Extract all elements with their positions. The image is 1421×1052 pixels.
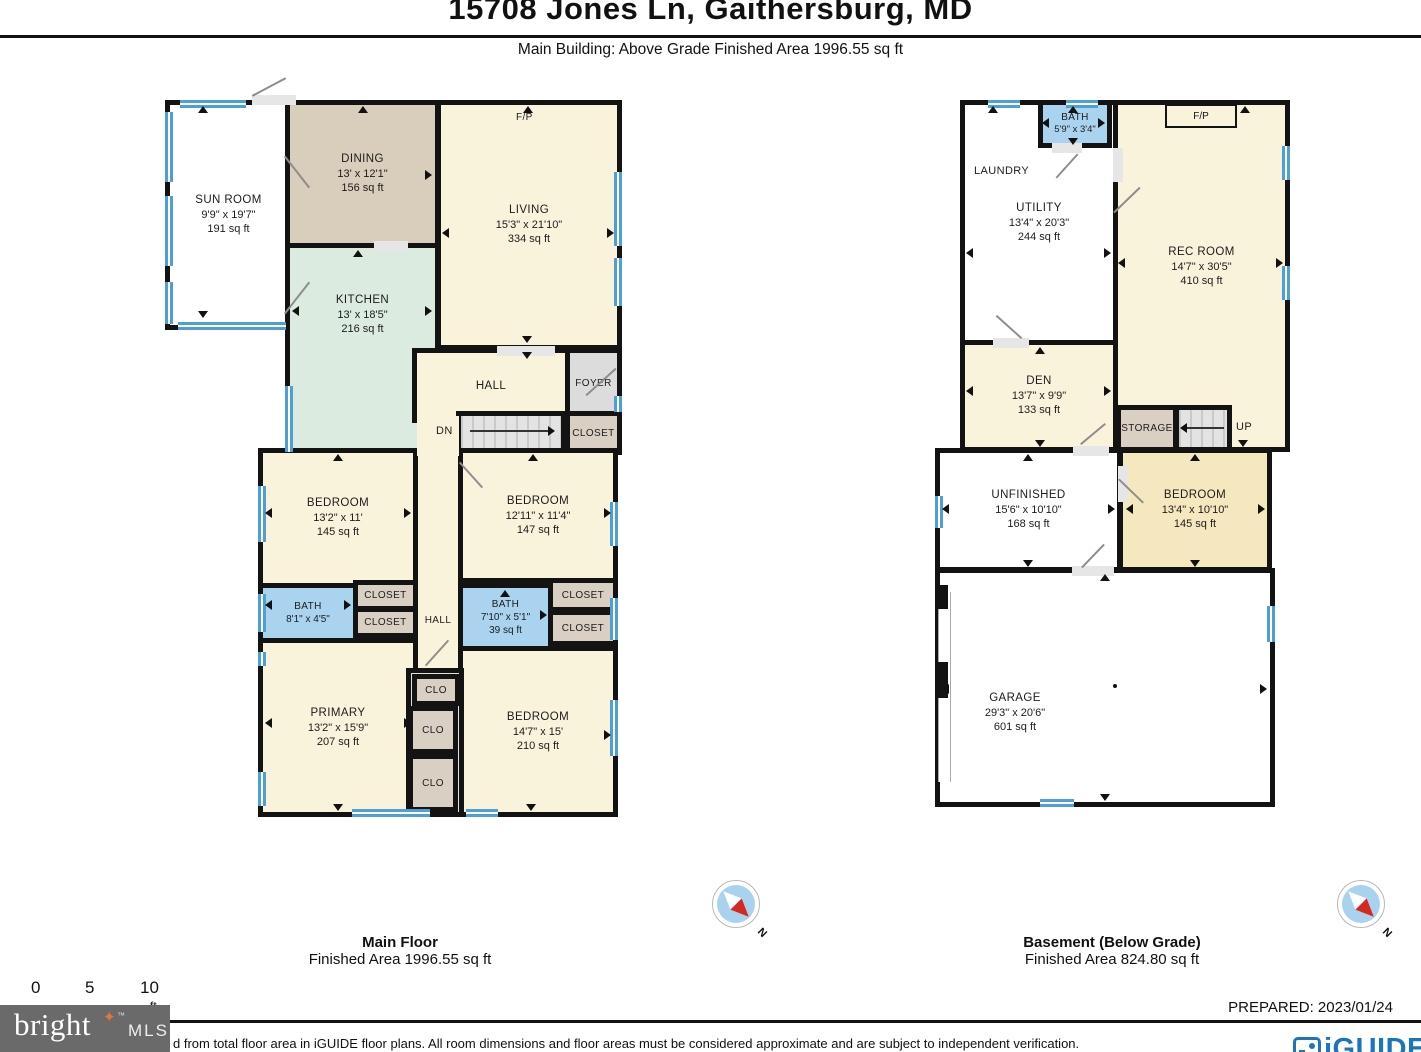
room-dims: 14'7" x 15': [507, 725, 569, 739]
room-bedroom-left: BEDROOM 13'2" x 11' 145 sq ft: [258, 448, 418, 588]
room-name: CLOSET: [364, 590, 406, 601]
door-opening: [993, 338, 1029, 348]
dim-arrow: [353, 250, 363, 257]
room-dims: 13'2" x 11': [307, 511, 369, 525]
fireplace-label: F/P: [1193, 111, 1209, 122]
room-name: BATH: [286, 600, 330, 613]
dim-arrow: [333, 804, 343, 811]
room-dims: 15'6" x 10'10": [991, 503, 1065, 517]
room-area: 145 sq ft: [1162, 517, 1228, 531]
dim-arrow: [1100, 574, 1110, 581]
dim-arrow: [1108, 504, 1115, 514]
disclaimer-text: d from total floor area in iGUIDE floor …: [173, 1036, 1283, 1051]
door-opening: [1113, 148, 1123, 182]
room-den: DEN 13'7" x 9'9" 133 sq ft: [960, 340, 1118, 452]
room-area: 207 sq ft: [308, 735, 368, 749]
room-dims: 8'1" x 4'5": [286, 613, 330, 626]
room-name: DINING: [337, 152, 387, 167]
mls-logo-text: MLS: [128, 1021, 169, 1041]
dim-arrow: [265, 600, 272, 610]
window: [610, 502, 618, 546]
room-living: LIVING 15'3" x 21'10" 334 sq ft: [436, 100, 622, 350]
dim-arrow: [966, 386, 973, 396]
dim-arrow: [1260, 684, 1267, 694]
room-name: PRIMARY: [308, 706, 368, 721]
dim-arrow: [198, 311, 208, 318]
iguide-logo-text: iGUIDE: [1324, 1033, 1421, 1052]
dim-arrow: [540, 610, 547, 620]
header-divider: [0, 35, 1421, 38]
room-area: 410 sq ft: [1168, 274, 1234, 288]
room-area: 156 sq ft: [337, 181, 387, 195]
window: [258, 772, 266, 806]
iguide-logo: iGUIDE: [1293, 1033, 1421, 1052]
laundry-label: LAUNDRY: [974, 165, 1029, 177]
stairs-arrow-head: [548, 426, 555, 436]
page-subtitle: Main Building: Above Grade Finished Area…: [0, 41, 1421, 59]
window: [610, 700, 618, 756]
dim-arrow: [1098, 118, 1105, 128]
room-clo-2: CLO: [408, 706, 458, 754]
room-garage: GARAGE 29'3" x 20'6" 601 sq ft: [935, 568, 1275, 807]
dim-arrow: [358, 106, 368, 113]
room-name: BEDROOM: [506, 494, 571, 509]
window: [1282, 266, 1290, 300]
door-opening: [252, 95, 296, 105]
room-area: 244 sq ft: [1009, 230, 1069, 244]
bright-star-icon: ✦: [103, 1008, 116, 1026]
dim-arrow: [1068, 138, 1078, 145]
dim-arrow: [1190, 560, 1200, 567]
room-name: CLO: [425, 685, 447, 696]
dim-arrow: [1104, 248, 1111, 258]
room-dims: 7'10" x 5'1": [481, 611, 530, 624]
room-name: SUN ROOM: [195, 193, 261, 208]
dim-arrow: [526, 804, 536, 811]
bright-tm: ™: [117, 1011, 125, 1020]
room-area: 601 sq ft: [985, 720, 1045, 734]
dim-arrow: [292, 306, 299, 316]
dim-arrow: [522, 336, 532, 343]
room-area: 210 sq ft: [507, 739, 569, 753]
dim-arrow: [404, 718, 411, 728]
room-closet-r1: CLOSET: [548, 578, 618, 612]
dim-arrow: [528, 454, 538, 461]
dim-arrow: [442, 228, 449, 238]
room-area: 147 sq ft: [506, 523, 571, 537]
compass-icon: N: [712, 880, 760, 928]
room-dims: 15'3" x 21'10": [496, 218, 562, 232]
room-name: UTILITY: [1009, 201, 1069, 216]
dim-arrow: [988, 106, 998, 113]
room-name: CLO: [422, 778, 444, 789]
room-storage: STORAGE: [1116, 405, 1178, 452]
room-name: CLOSET: [562, 590, 604, 601]
dim-arrow: [344, 600, 351, 610]
window: [466, 809, 498, 817]
dim-arrow: [500, 590, 510, 597]
room-closet-l2: CLOSET: [353, 607, 418, 638]
compass-icon: N: [1337, 880, 1385, 928]
window: [285, 386, 293, 452]
room-dims: 14'7" x 30'5": [1168, 260, 1234, 274]
room-rec-room: REC ROOM 14'7" x 30'5" 410 sq ft: [1113, 100, 1290, 452]
room-name: BATH: [481, 598, 530, 611]
dim-arrow: [604, 730, 611, 740]
room-closet-r2: CLOSET: [548, 610, 618, 646]
dim-arrow: [404, 508, 411, 518]
fireplace-label: F/P: [516, 112, 533, 123]
room-area: 191 sq ft: [195, 222, 261, 236]
dim-arrow: [1023, 454, 1033, 461]
window: [614, 258, 622, 306]
room-name: CLOSET: [364, 617, 406, 628]
dim-arrow: [1238, 440, 1248, 447]
fireplace-box: F/P: [1165, 104, 1237, 128]
footer-divider: [0, 1020, 1421, 1023]
caption-title: Main Floor: [240, 934, 560, 951]
basement-caption: Basement (Below Grade) Finished Area 824…: [952, 934, 1272, 968]
room-area: 216 sq ft: [336, 322, 389, 336]
window: [1267, 606, 1275, 642]
window: [165, 282, 173, 324]
dim-arrow: [425, 170, 432, 180]
room-name: KITCHEN: [336, 293, 389, 308]
window: [1040, 799, 1074, 807]
window: [178, 322, 286, 330]
window: [258, 652, 266, 666]
room-name: REC ROOM: [1168, 245, 1234, 260]
window: [614, 172, 622, 246]
room-bedroom-bottom: BEDROOM 14'7" x 15' 210 sq ft: [458, 646, 618, 817]
room-name: BATH: [1054, 111, 1096, 124]
room-clo-1: CLO: [412, 674, 460, 706]
room-area: 168 sq ft: [991, 517, 1065, 531]
dim-arrow: [265, 508, 272, 518]
stairs-up-label: UP: [1236, 421, 1252, 433]
room-area: 133 sq ft: [1012, 403, 1066, 417]
room-bath-left: BATH 8'1" x 4'5": [258, 583, 358, 643]
dim-arrow: [1035, 440, 1045, 447]
dim-arrow: [333, 454, 343, 461]
room-name: GARAGE: [985, 691, 1045, 706]
room-sun-room: SUN ROOM 9'9" x 19'7" 191 sq ft: [165, 100, 292, 330]
room-dims: 13'2" x 15'9": [308, 721, 368, 735]
window: [165, 112, 173, 182]
room-name: DEN: [1012, 374, 1066, 389]
room-name: BEDROOM: [1162, 488, 1228, 503]
room-dims: 13'4" x 20'3": [1009, 216, 1069, 230]
room-name: HALL: [425, 615, 452, 626]
window: [1282, 146, 1290, 180]
room-dims: 13'4" x 10'10": [1162, 503, 1228, 517]
main-floor-caption: Main Floor Finished Area 1996.55 sq ft: [240, 934, 560, 968]
dim-arrow: [522, 352, 532, 359]
stairs-dn-label: DN: [436, 425, 453, 437]
room-name: CLO: [422, 725, 444, 736]
room-name: BEDROOM: [507, 710, 569, 725]
dim-arrow: [1023, 560, 1033, 567]
stairs-arrow-line: [1186, 427, 1224, 429]
room-dims: 13'7" x 9'9": [1012, 389, 1066, 403]
window: [165, 196, 173, 266]
room-dims: 12'11" x 11'4": [506, 509, 571, 523]
room-dims: 9'9" x 19'7": [195, 208, 261, 222]
room-area: 39 sq ft: [481, 624, 530, 637]
room-name: LIVING: [496, 203, 562, 218]
door-opening: [374, 241, 408, 251]
dim-arrow: [1258, 504, 1265, 514]
room-dining: DINING 13' x 12'1" 156 sq ft: [285, 100, 440, 248]
dim-arrow: [1126, 504, 1133, 514]
wall-stub: [935, 585, 948, 609]
dim-arrow: [523, 106, 533, 113]
dim-arrow: [1240, 106, 1250, 113]
room-hall-lower: HALL: [413, 448, 463, 683]
dim-arrow: [1035, 347, 1045, 354]
room-clo-3: CLO: [408, 754, 458, 812]
dim-arrow: [1042, 118, 1049, 128]
room-bedroom-right: BEDROOM 12'11" x 11'4" 147 sq ft: [458, 448, 618, 583]
dim-arrow: [425, 306, 432, 316]
dim-arrow: [1100, 794, 1110, 801]
caption-area: Finished Area 1996.55 sq ft: [240, 951, 560, 968]
room-name: CLOSET: [572, 428, 614, 439]
bright-mls-logo: bright ✦ ™ MLS: [0, 1005, 170, 1052]
prepared-date: PREPARED: 2023/01/24: [1228, 999, 1393, 1016]
stairs-arrow-line: [470, 430, 548, 432]
page-title: 15708 Jones Ln, Gaithersburg, MD: [0, 0, 1421, 27]
room-primary: PRIMARY 13'2" x 15'9" 207 sq ft: [258, 638, 418, 817]
dim-arrow: [942, 504, 949, 514]
iguide-icon: [1293, 1037, 1321, 1052]
stairs-arrow-head: [1180, 423, 1187, 433]
room-name: CLOSET: [562, 623, 604, 634]
room-dims: 29'3" x 20'6": [985, 706, 1045, 720]
caption-title: Basement (Below Grade): [952, 934, 1272, 951]
room-dims: 5'9" x 3'4": [1054, 124, 1096, 136]
room-name: UNFINISHED: [991, 488, 1065, 503]
dim-arrow: [607, 228, 614, 238]
window: [180, 100, 246, 108]
door-leaf: [252, 77, 286, 97]
dim-arrow: [1190, 454, 1200, 461]
compass-north-label: N: [1380, 926, 1394, 940]
room-dims: 13' x 12'1": [337, 167, 387, 181]
room-area: 334 sq ft: [496, 232, 562, 246]
door-opening: [1073, 446, 1109, 456]
bright-logo-text: bright: [14, 1007, 91, 1043]
dim-arrow: [1118, 258, 1125, 268]
dim-arrow: [942, 684, 949, 694]
dim-arrow: [198, 106, 208, 113]
window: [352, 809, 430, 817]
room-name: STORAGE: [1121, 423, 1173, 434]
dim-arrow: [265, 718, 272, 728]
caption-area: Finished Area 824.80 sq ft: [952, 951, 1272, 968]
scale-tick-10: 10: [140, 978, 159, 998]
room-name: HALL: [476, 380, 506, 392]
compass-north-label: N: [755, 926, 769, 940]
window: [610, 598, 618, 640]
dim-arrow: [1104, 386, 1111, 396]
dim-arrow: [1276, 258, 1283, 268]
floor-plan-page: 15708 Jones Ln, Gaithersburg, MD Main Bu…: [0, 0, 1421, 1052]
room-area: 145 sq ft: [307, 525, 369, 539]
scale-tick-0: 0: [31, 978, 40, 998]
window: [614, 396, 622, 412]
garage-dot: [1113, 684, 1117, 688]
room-bedroom-basement: BEDROOM 13'4" x 10'10" 145 sq ft: [1118, 448, 1272, 572]
dim-arrow: [1068, 106, 1078, 113]
scale-tick-5: 5: [85, 978, 94, 998]
dim-arrow: [604, 508, 611, 518]
room-name: BEDROOM: [307, 496, 369, 511]
dim-arrow: [966, 248, 973, 258]
room-dims: 13' x 18'5": [336, 308, 389, 322]
